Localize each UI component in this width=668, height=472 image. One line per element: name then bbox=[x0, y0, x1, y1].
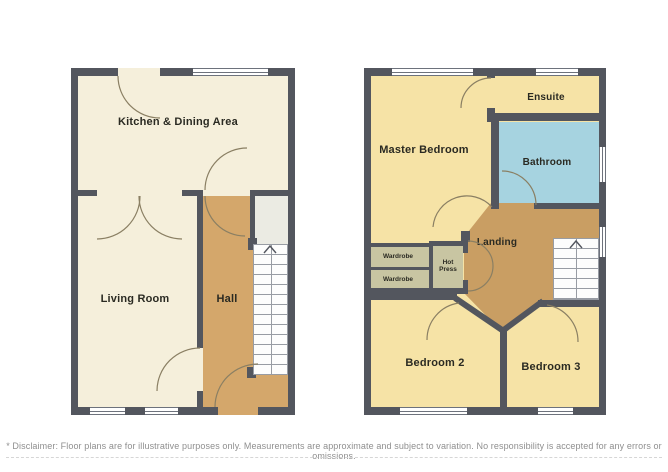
bedroom2-label: Bedroom 2 bbox=[375, 357, 495, 369]
ff-window-bed3 bbox=[538, 407, 573, 415]
master-bedroom-label: Master Bedroom bbox=[364, 144, 484, 156]
gf-wall-right bbox=[288, 68, 295, 415]
ff-window-bathroom bbox=[599, 147, 606, 182]
gf-wall-kitchen-c bbox=[250, 190, 288, 196]
gf-window-living-1 bbox=[90, 407, 125, 415]
storage-area bbox=[255, 196, 288, 244]
landing-label: Landing bbox=[457, 237, 537, 248]
living-room-label: Living Room bbox=[75, 293, 195, 305]
ff-window-master bbox=[392, 68, 473, 76]
gf-window-kitchen bbox=[193, 68, 268, 76]
ff-wall-bathroom-left bbox=[491, 121, 499, 209]
gf-wall-hall-a bbox=[197, 196, 203, 348]
bedroom3-label: Bedroom 3 bbox=[501, 361, 601, 373]
gf-back-door-gap bbox=[118, 68, 160, 76]
floor-plan-canvas: Kitchen & Dining Area Living Room Hall bbox=[0, 0, 668, 472]
ff-wall-hotpress-stub-b bbox=[463, 280, 468, 294]
gf-wall-hall-b bbox=[197, 391, 203, 407]
disclaimer-text: * Disclaimer: Floor plans are for illust… bbox=[0, 441, 668, 461]
gf-staircase bbox=[253, 244, 288, 375]
hot-press-label: Hot Press bbox=[433, 259, 463, 273]
ff-wall-bed2-top bbox=[364, 294, 457, 300]
wardrobe1-label: Wardrobe bbox=[368, 253, 428, 260]
gf-wall-left bbox=[71, 68, 78, 415]
ff-wall-bathroom-bottom bbox=[534, 203, 599, 209]
ff-wall-wardrobe-top bbox=[364, 243, 433, 247]
gf-wall-kitchen-a bbox=[78, 190, 97, 196]
gf-front-door-gap bbox=[218, 407, 258, 415]
kitchen-dining-label: Kitchen & Dining Area bbox=[98, 116, 258, 128]
ff-staircase bbox=[553, 238, 599, 300]
ensuite-label: Ensuite bbox=[506, 92, 586, 103]
bathroom-label: Bathroom bbox=[507, 157, 587, 168]
ff-window-ensuite bbox=[536, 68, 578, 76]
ff-window-bed2 bbox=[400, 407, 467, 415]
hall-under-stairs bbox=[253, 375, 288, 407]
wardrobe2-label: Wardrobe bbox=[368, 276, 428, 283]
gf-window-living-2 bbox=[145, 407, 178, 415]
ff-ensuite-door-gap bbox=[487, 78, 495, 108]
ff-window-stairs bbox=[599, 227, 606, 257]
ff-wall-ensuite-bottom bbox=[487, 113, 599, 121]
ff-wall-left bbox=[364, 68, 371, 415]
footer-divider bbox=[6, 457, 662, 458]
gf-wall-storage bbox=[250, 196, 255, 244]
ff-wall-under-stairs bbox=[538, 300, 599, 307]
ff-wall-wardrobe-mid bbox=[364, 267, 429, 270]
hall-label: Hall bbox=[203, 293, 251, 305]
